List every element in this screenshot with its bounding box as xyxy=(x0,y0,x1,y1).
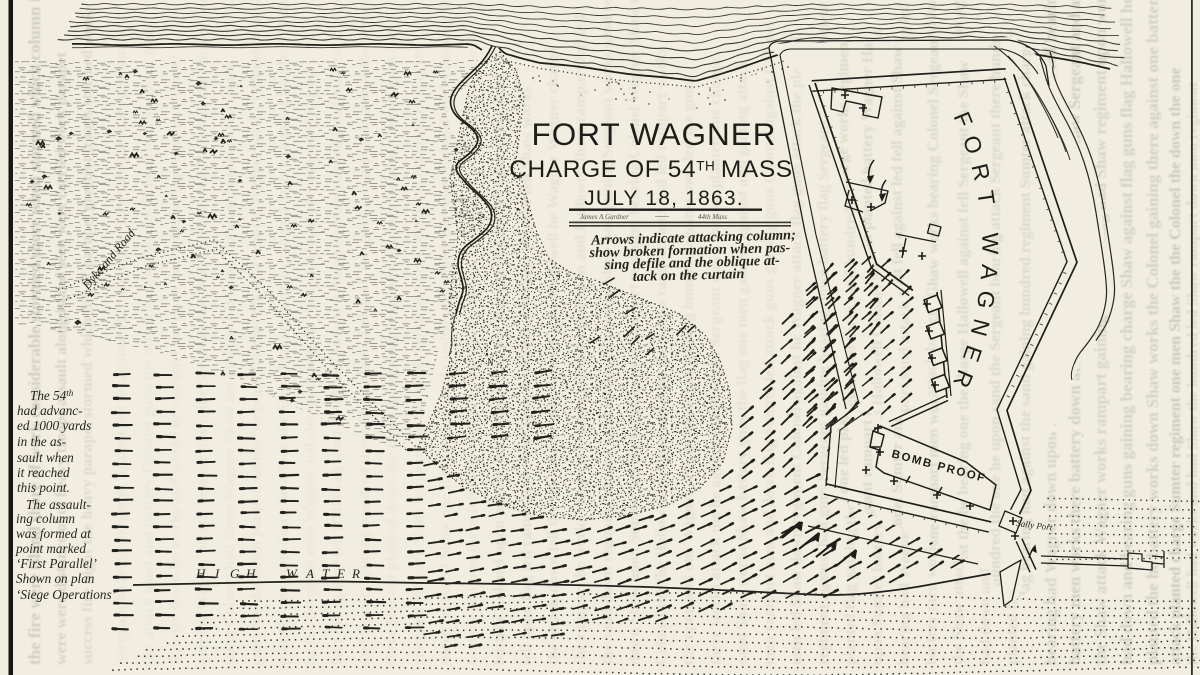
svg-text:H: H xyxy=(195,566,206,581)
svg-text:had advanc-: had advanc- xyxy=(17,403,83,418)
svg-text:sault when: sault when xyxy=(17,450,74,465)
svg-text:ed 1000 yards: ed 1000 yards xyxy=(17,418,91,433)
svg-text:44th Mass: 44th Mass xyxy=(698,213,727,221)
svg-text:attack planted charge Sumter r: attack planted charge Sumter regiment on… xyxy=(1167,67,1184,665)
svg-text:——: —— xyxy=(655,213,669,220)
svg-text:H: H xyxy=(245,566,256,581)
svg-text:R: R xyxy=(351,566,360,581)
svg-text:this point.: this point. xyxy=(17,480,70,495)
svg-text:James A Gardner: James A Gardner xyxy=(580,213,629,221)
svg-text:FORT WAGNER: FORT WAGNER xyxy=(532,116,777,152)
svg-text:Shown on plan: Shown on plan xyxy=(16,571,95,586)
svg-text:G: G xyxy=(230,566,240,581)
svg-text:I: I xyxy=(214,566,220,581)
svg-text:T: T xyxy=(322,566,330,581)
svg-text:‘First Parallel’: ‘First Parallel’ xyxy=(16,556,97,571)
svg-text:in the as-: in the as- xyxy=(17,434,66,449)
svg-text:men led Shaw down regiment Col: men led Shaw down regiment Colonel again… xyxy=(788,36,805,665)
svg-text:N: N xyxy=(486,358,495,369)
svg-text:A: A xyxy=(305,566,314,581)
svg-text:E: E xyxy=(336,566,345,581)
svg-text:W: W xyxy=(286,566,298,581)
svg-text:‘Siege Operations’: ‘Siege Operations’ xyxy=(16,587,116,602)
svg-text:ing column: ing column xyxy=(16,511,75,526)
svg-text:it reached: it reached xyxy=(17,465,70,480)
svg-text:point marked: point marked xyxy=(15,541,86,556)
svg-text:tack on the curtain: tack on the curtain xyxy=(633,266,745,285)
svg-text:CHARGE OF 54TH MASS: CHARGE OF 54TH MASS xyxy=(509,156,792,183)
svg-text:JULY 18, 1863.: JULY 18, 1863. xyxy=(584,187,744,210)
svg-text:was formed at: was formed at xyxy=(16,526,91,541)
svg-text:The assault-: The assault- xyxy=(26,497,91,512)
